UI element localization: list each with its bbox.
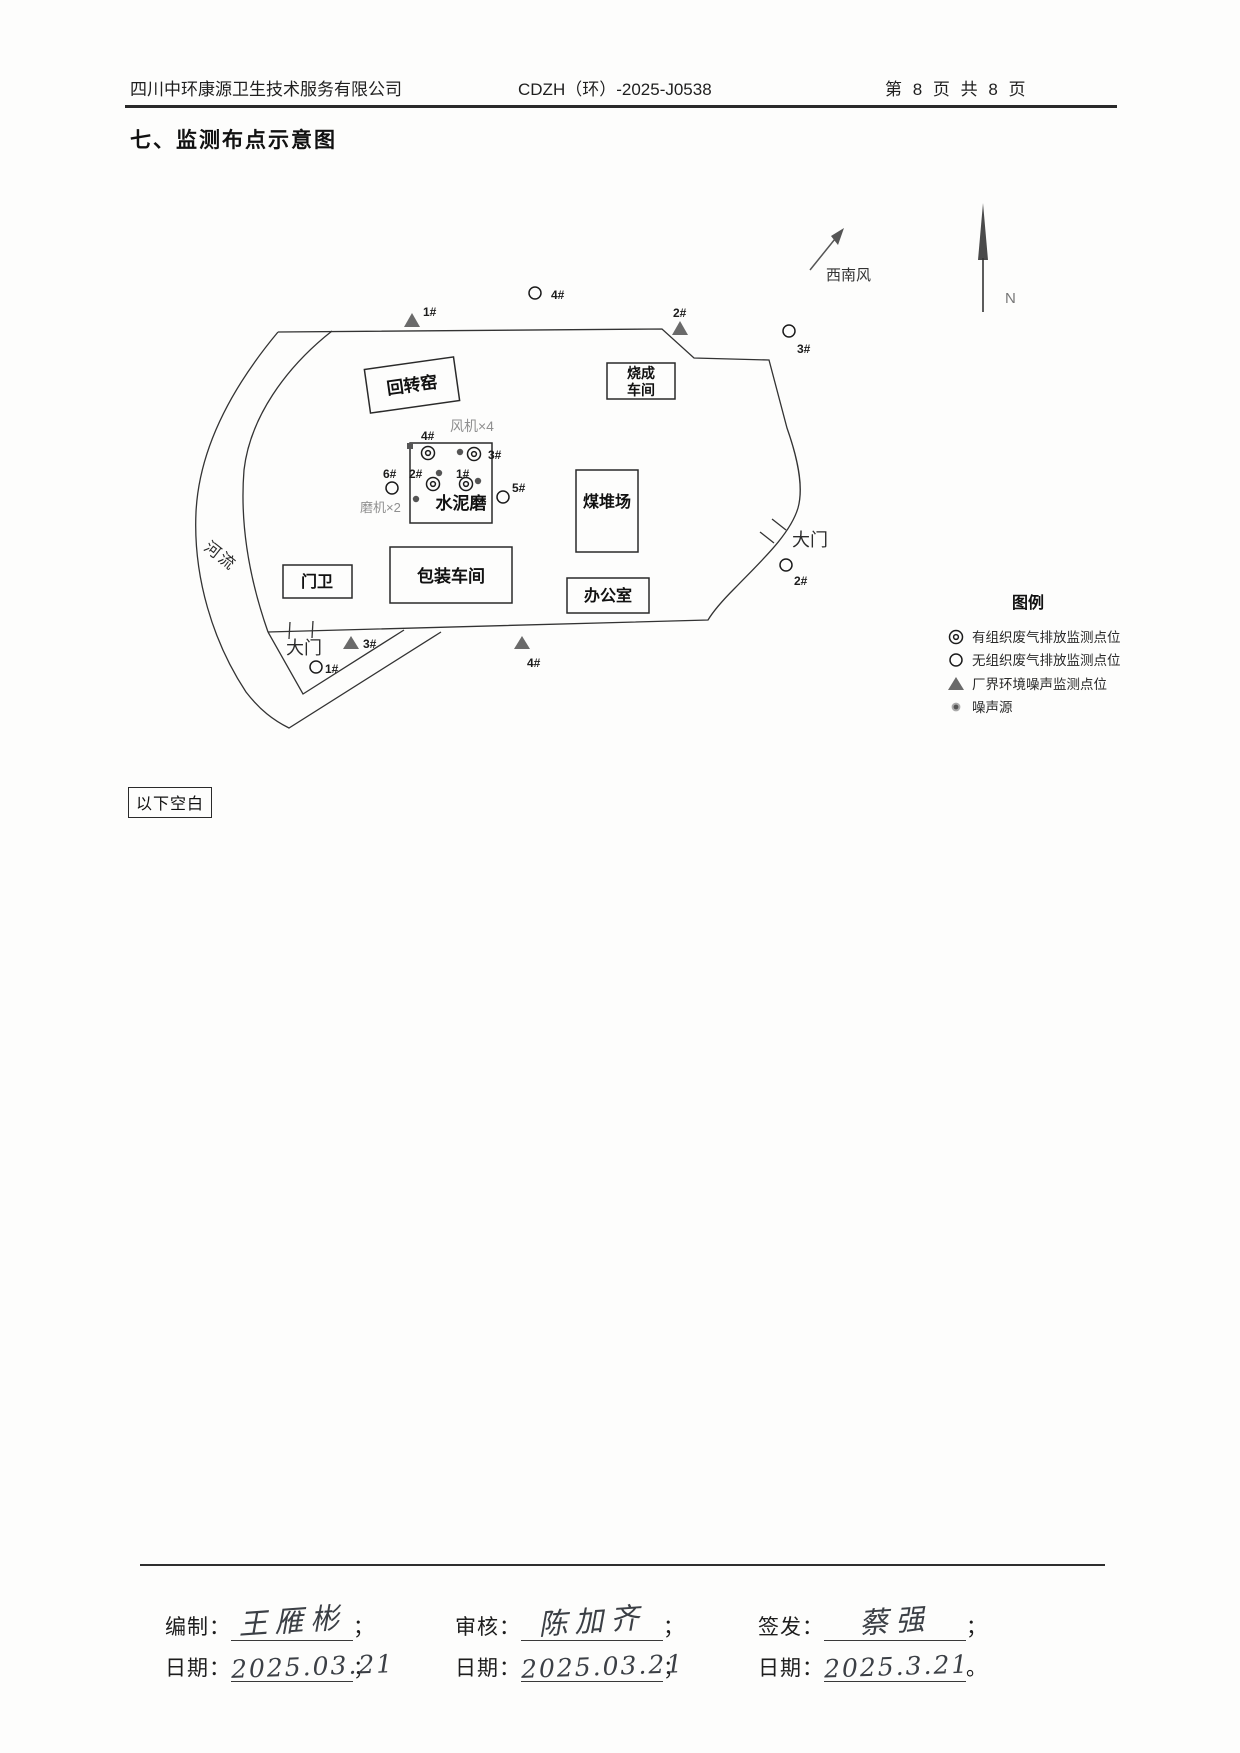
reviewed-date-value: 2025.03.21 [521,1649,685,1684]
organized-gas-point-4-label: 4# [421,429,435,443]
noise-point-3: 3# [343,636,377,651]
dot-icon [953,704,960,711]
noise-point-2-label: 2# [673,306,687,320]
unorganized-gas-point-6: 6# [383,467,398,494]
organized-gas-point-3: 3# [468,448,502,463]
building-gatehouse: 门卫 [283,565,352,598]
noise-source-dot [413,496,419,502]
gate-bottom-label: 大门 [286,638,322,658]
fans-label: 风机×4 [450,418,494,434]
reviewed-date-field: 日期：2025.03.21； [455,1652,684,1682]
legend-item-boundary-noise-label: 厂界环境噪声监测点位 [972,677,1107,692]
reviewed-by-field: 审核：陈加齐； [455,1598,684,1641]
gatehouse-label: 门卫 [301,572,333,591]
reviewed-by-signature: 陈加齐 [537,1594,648,1643]
legend-item-unorganized-gas: 无组织废气排放监测点位 [950,653,1121,668]
organized-gas-point-4: 4# [421,429,435,460]
gate-right: 大门 [760,519,828,550]
gate-bottom-tick-2 [312,621,313,638]
unorganized-gas-point-1-label: 1# [325,662,339,676]
legend-item-organized-gas-label: 有组织废气排放监测点位 [972,630,1121,645]
unorganized-gas-point-3-label: 3# [797,342,811,356]
issued-by-label: 签发： [758,1616,824,1639]
coal-yard-outline [576,470,638,552]
unorganized-gas-point-5-label: 5# [512,481,526,495]
organized-gas-point-2-label: 2# [409,467,423,481]
double-circle-icon-inner [954,635,959,640]
legend-item-organized-gas: 有组织废气排放监测点位 [950,630,1121,645]
building-rotary-kiln: 回转窑 [364,357,459,413]
noise-source-dot [475,478,481,484]
office-label: 办公室 [584,586,632,605]
gate-bottom: 大门 [286,621,322,658]
unorganized-gas-point-2: 2# [780,559,808,588]
north-label: N [1005,290,1016,307]
issued-date-label: 日期： [758,1657,824,1680]
unorganized-gas-point-4-label: 4# [551,288,565,302]
legend-title: 图例 [1012,593,1044,612]
mills-label: 磨机×2 [360,500,401,515]
issued-date-field: 日期：2025.3.21。 [758,1652,987,1682]
noise-point-1-label: 1# [423,305,437,319]
organized-gas-point-3-label: 3# [488,448,502,462]
building-packing-workshop: 包装车间 [390,547,512,603]
prepared-by-label: 编制： [165,1616,231,1639]
noise-point-1: 1# [404,305,437,327]
gate-bottom-tick-1 [289,622,290,639]
reviewed-by-suffix: ； [663,1616,684,1639]
prepared-date-value: 2025.03.21 [231,1649,395,1684]
noise-point-2: 2# [672,306,688,335]
noise-point-4: 4# [514,636,541,670]
prepared-by-field: 编制：王雁彬； [165,1598,374,1641]
footer-rule [140,1564,1105,1566]
prepared-date-field: 日期：2025.03.21； [165,1652,374,1682]
noise-source-corner-marker [407,443,413,449]
building-firing-workshop: 烧成 车间 [607,363,675,399]
gate-right-tick-2 [760,532,774,543]
unorganized-gas-point-5: 5# [497,481,526,503]
issued-by-signature: 蔡强 [858,1596,933,1643]
cement-mill-label: 水泥磨 [436,493,488,513]
monitoring-layout-diagram: N 西南风 河流 大门 大门 回转窑 烧成 车间 水泥磨 [0,0,1240,800]
noise-source-dot [457,449,463,455]
coal-yard-label: 煤堆场 [583,492,631,511]
north-arrow-head [978,203,988,260]
issued-by-field: 签发：蔡强； [758,1598,987,1641]
blank-below-note: 以下空白 [128,787,212,818]
prepared-by-signature: 王雁彬 [237,1594,348,1643]
issued-date-value: 2025.3.21 [824,1649,970,1683]
wind-arrow: 西南风 [810,228,871,284]
unorganized-gas-point-3: 3# [783,325,811,356]
wind-label: 西南风 [826,267,871,284]
building-office: 办公室 [567,578,649,613]
noise-source-dot [436,470,442,476]
noise-point-4-label: 4# [527,656,541,670]
legend-item-noise-source-label: 噪声源 [972,700,1013,715]
packing-workshop-label: 包装车间 [417,566,485,586]
triangle-icon [948,677,964,690]
legend-item-boundary-noise: 厂界环境噪声监测点位 [948,677,1107,692]
firing-workshop-label-line2: 车间 [627,382,655,398]
prepared-date-label: 日期： [165,1657,231,1680]
gate-right-tick-1 [772,519,786,530]
diagram-legend: 图例 有组织废气排放监测点位 无组织废气排放监测点位 厂界环境噪声监测点位 噪声… [948,593,1121,715]
firing-workshop-label-line1: 烧成 [627,365,655,381]
unorganized-gas-point-1: 1# [310,661,339,676]
organized-gas-point-1-label: 1# [456,467,470,481]
issued-by-suffix: ； [966,1616,987,1639]
organized-gas-point-2: 2# [409,467,440,491]
double-circle-icon [950,631,963,644]
river-label: 河流 [201,538,240,574]
legend-item-noise-source: 噪声源 [953,700,1013,715]
building-coal-yard: 煤堆场 [576,470,638,552]
legend-item-unorganized-gas-label: 无组织废气排放监测点位 [972,653,1121,668]
gate-right-label: 大门 [792,530,828,550]
unorganized-gas-point-2-label: 2# [794,574,808,588]
circle-icon [950,654,962,666]
organized-gas-point-1: 1# [456,467,473,491]
prepared-by-suffix: ； [353,1616,374,1639]
unorganized-gas-point-4: 4# [529,287,565,302]
reviewed-date-label: 日期： [455,1657,521,1680]
north-arrow: N [978,203,1016,312]
unorganized-gas-point-6-label: 6# [383,467,397,481]
noise-point-3-label: 3# [363,637,377,651]
reviewed-by-label: 审核： [455,1616,521,1639]
